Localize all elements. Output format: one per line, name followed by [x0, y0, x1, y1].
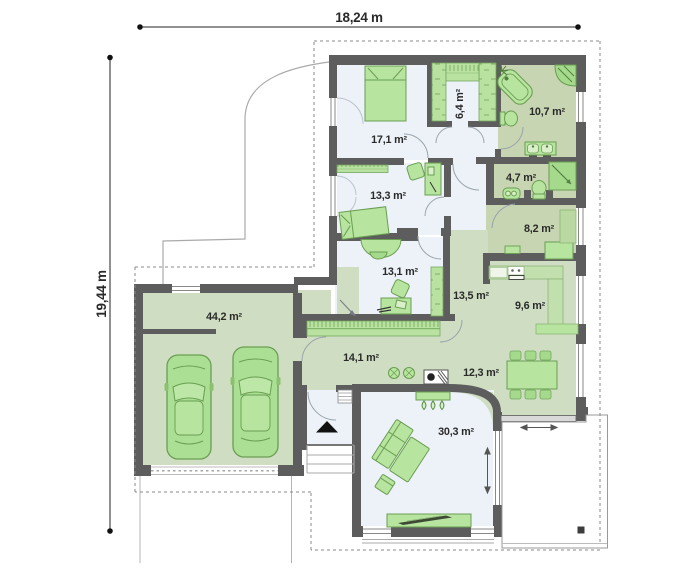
svg-text:10,7 m²: 10,7 m² — [529, 106, 565, 118]
svg-text:6,4 m²: 6,4 m² — [454, 88, 466, 119]
svg-text:17,1 m²: 17,1 m² — [371, 134, 407, 146]
svg-text:9,6 m²: 9,6 m² — [515, 300, 546, 312]
svg-text:8,2 m²: 8,2 m² — [524, 223, 555, 235]
svg-text:13,5 m²: 13,5 m² — [453, 290, 489, 302]
svg-text:13,3 m²: 13,3 m² — [370, 190, 406, 202]
svg-text:30,3 m²: 30,3 m² — [438, 426, 474, 438]
svg-text:13,1 m²: 13,1 m² — [382, 266, 418, 278]
svg-text:18,24 m: 18,24 m — [335, 10, 383, 25]
svg-text:4,7 m²: 4,7 m² — [506, 172, 537, 184]
svg-text:14,1 m²: 14,1 m² — [343, 352, 379, 364]
svg-text:19,44 m: 19,44 m — [94, 270, 109, 318]
svg-text:12,3 m²: 12,3 m² — [463, 367, 499, 379]
svg-text:44,2 m²: 44,2 m² — [206, 311, 242, 323]
